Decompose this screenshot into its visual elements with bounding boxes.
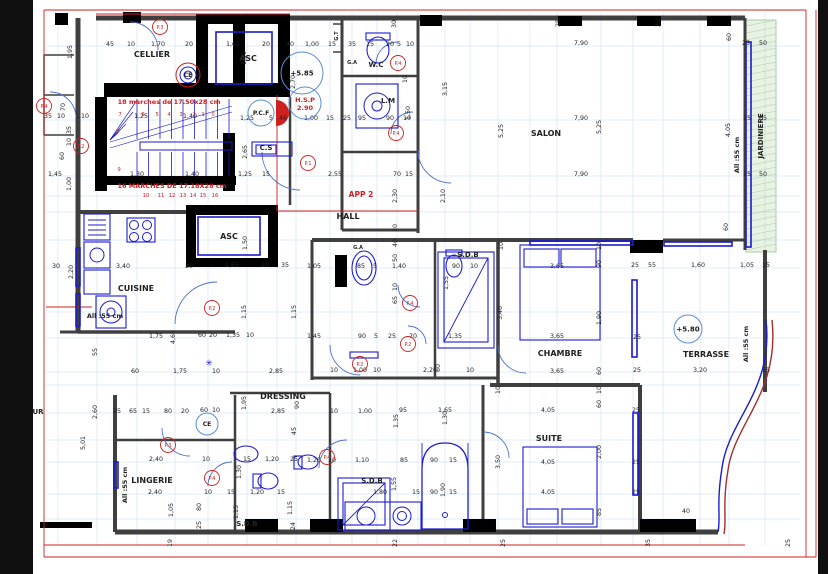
dimension: 1,90 [596,311,603,325]
dimension: 60 [723,223,730,231]
door-swing-arc [162,428,190,456]
fixture [350,352,378,358]
dimension: 3,40 [497,306,504,320]
dimension: 22 [392,539,399,547]
dimension: 25 [388,333,396,340]
stair-step-number: 9 [117,167,120,173]
dimension: 60 [131,368,139,375]
dimension: 90 [452,263,460,270]
dimension: 40 [682,508,690,515]
dimension: 2,60 [92,405,99,419]
fixture-circle [143,221,152,230]
dimension: 1,70 [151,41,165,48]
dimension: 1,00 [358,408,372,415]
allege-note: All :55 cm [121,467,129,504]
dimension: 10 [204,489,212,496]
dimension: 1,35 [226,332,240,339]
structural-column [55,13,68,25]
dimension: 1,40 [392,263,406,270]
structural-column [186,205,278,215]
stair-note: 16 MARCHES DE 17.18X28 cm [117,182,226,190]
door-tag: P.2 [77,144,84,150]
dimension: 15 [326,115,334,122]
dimension: 90 [596,260,603,268]
dimension: 15 [227,489,235,496]
dimension: 1,20 [265,456,279,463]
dimension: 1,75 [173,368,187,375]
dimension: 2,40 [148,489,162,496]
circled-label: P.C.F [253,110,269,117]
dimension: 10 [373,367,381,374]
dimension: 2,10 [440,189,447,203]
dimension: 15 [762,262,770,269]
fixture-line [444,258,488,342]
dimension: 10 [127,41,135,48]
dimension: 90 [358,333,366,340]
room-label: LINGERIE [131,476,172,485]
dimension: 1,65 [226,41,240,48]
dimension: 15 [142,408,150,415]
door-swing-arc [498,345,526,373]
dimension: 1,35 [448,333,462,340]
door-swing-arc [208,462,232,486]
dimension: 3,20 [693,367,707,374]
dimension: 5 [373,263,377,270]
dimension: 85 [596,508,603,516]
dimension: 2,55 [328,171,342,178]
structural-column [630,240,663,253]
dimension: 7,90 [574,115,588,122]
dimension: 25 [633,367,641,374]
dimension: 60 [198,332,206,339]
dimension: 15 [243,456,251,463]
dimension: 1,15 [241,305,248,319]
dimension: 1,45 [307,333,321,340]
dimension: 10 [57,113,65,120]
room-label: ASC [220,232,238,241]
room-label: G.A [353,245,363,251]
dimension: 60 [596,367,603,375]
room-label: DRESSING [260,392,306,401]
structural-column [268,205,278,267]
dimension: 1,00 [66,177,73,191]
dimension: 60 [435,364,442,372]
room-label: G.A [347,60,357,66]
dimension: 25 [632,407,640,414]
dimension: 90 [430,489,438,496]
dimension: 90 [386,115,394,122]
room-label: ASC [239,54,257,63]
hsp-label: H.S.P [295,96,315,104]
dimension: 15 [366,41,374,48]
dimension: 25 [633,334,641,341]
dimension: 10 [466,367,474,374]
dimension: 1,20 [250,489,264,496]
dimension: 2,40 [149,456,163,463]
dimension: 35 [281,262,289,269]
door-swing-arc [175,282,217,324]
circled-label: CE [184,72,193,79]
dimension: 3,15 [442,82,449,96]
room-label: L.M [381,97,395,105]
dimension: 35 [645,539,652,547]
dimension: 2,85 [269,368,283,375]
door-tag: P.4 [40,104,47,110]
dimension: 10 [498,242,505,250]
dimension: 3,50 [495,455,502,469]
stair-step-number: 12 [169,193,176,199]
room-label: HALL [336,212,359,221]
dimension: 20 [181,408,189,415]
dimension: 65 [759,115,767,122]
room-label: S.D.B [457,251,479,259]
door-tag: P.3 [164,443,171,449]
stair-note: APP 2 [349,190,374,199]
stair-step-number: 11 [158,193,165,199]
dimension: 3,65 [550,368,564,375]
fixture [562,509,593,524]
stair-rail [140,142,232,150]
floor-plan-drawing: JARDINIERE✳45101,70201,6520401,001535152… [0,0,828,574]
dimension: 4,65 [170,330,177,344]
allege-note: All :55 cm [733,137,741,174]
stair-step-number: 10 [143,193,150,199]
window [632,280,637,357]
room-label: CUISINE [118,284,154,293]
dimension: 50 [392,254,399,262]
dimension: 25 [785,539,792,547]
dimension: 15 [262,171,270,178]
dimension: 55 [648,262,656,269]
dimension: 1,25 [238,171,252,178]
dimension: 60 [596,400,603,408]
structural-column [335,255,347,287]
dimension: 1,10 [355,457,369,464]
dimension: 1,15 [291,305,298,319]
structural-column [186,205,196,267]
structural-column [40,522,92,528]
dimension: 25 [632,489,640,496]
dimension: 25 [196,521,203,529]
dimension: 5 [374,333,378,340]
dimension: 10 [596,242,603,250]
dimension: 1,75 [149,333,163,340]
fixture [561,249,596,267]
dimension: 1,05 [168,503,175,517]
window [633,413,638,495]
dimension: 25 [500,539,507,547]
dimension: 35 [44,113,52,120]
fixture [523,447,597,527]
allege-note: All :55 cm [87,312,124,320]
door-tag: P.4 [208,476,215,482]
stair-step-number: 13 [180,193,187,199]
allege-note: All :55 cm [742,326,750,363]
level-marker: +5.85 [290,70,313,78]
dimension: 1,55 [443,276,450,290]
structural-column [104,83,290,97]
dimension: 4,05 [541,489,555,496]
dimension: 24 [290,522,297,530]
dimension: 15 [405,171,413,178]
dimension: 30 [392,224,399,232]
dimension: 25 [743,115,751,122]
room-label: UR [32,408,44,416]
dimension: 25 [743,171,751,178]
dimension: 3,65 [550,263,564,270]
door-tag: P.2 [356,362,363,368]
dimension: 1,30 [130,171,144,178]
dimension: 55 [92,348,99,356]
dimension: 1,55 [391,477,398,491]
dimension: 1,65 [225,262,239,269]
dimension: 10 [406,41,414,48]
room-label: S.D.B [361,477,383,485]
dimension: 15 [762,367,770,374]
dimension: 19 [167,539,174,547]
dimension: 25 [343,115,351,122]
structural-column [707,16,731,26]
dimension: 1,90 [440,483,447,497]
room-label: SALON [531,129,561,138]
dimension: 45 [106,41,114,48]
dimension: 60 [726,33,733,41]
dimension: 20 [209,332,217,339]
dimension: 7,90 [574,171,588,178]
dimension: 80 [196,503,203,511]
dimension: 95 [358,115,366,122]
dimension: 60 [59,152,66,160]
stair-step-number: 4 [167,112,171,118]
window [664,242,732,246]
dimension: 20 [185,263,193,270]
structural-column [640,519,696,532]
dimension: 1,95 [67,45,74,59]
dimension: 45 [291,427,298,435]
dimension: 20 [261,262,269,269]
room-label: C.S [260,144,273,152]
stair-step-number: 15 [200,193,207,199]
dimension: 1,15 [287,501,294,515]
dimension: 5 [397,41,401,48]
dimension: 85 [400,457,408,464]
dimension: 1,95 [241,396,248,410]
dimension: 15 [412,489,420,496]
dimension: 3,65 [550,333,564,340]
dimension: 25 [632,459,640,466]
dimension: 10 [330,408,338,415]
dimension: 1,05 [740,262,754,269]
fixture-circle [393,507,411,525]
dimension: 1,80 [373,489,387,496]
stair-step-number: 5 [155,112,158,118]
stair-step-number: 1 [201,112,204,118]
dimension: 4,05 [541,459,555,466]
dimension: 10 [392,283,399,291]
dimension: 1,00 [305,41,319,48]
dimension: 25 [555,19,562,27]
dimension: 25 [742,40,750,47]
dimension: 10 [246,332,254,339]
dimension: 10 [470,263,478,270]
stair-note: 18 marches de 17.50x28 cm [118,98,221,106]
room-label: SUITE [536,434,562,443]
dimension: 80 [164,408,172,415]
dimension: 85 [357,263,365,270]
dimension: 70 [393,171,401,178]
dimension: 70 [60,103,67,111]
room-label: S.D.B [236,520,258,528]
stair-step-number: 16 [212,193,219,199]
door-tag: P.4 [323,455,330,461]
dimension: 1,30 [442,411,449,425]
dimension: 50 [759,40,767,47]
room-label: G.T [334,31,340,41]
room-label: CHAMBRE [538,349,582,358]
dimension: 10 [212,407,220,414]
fire-door-sector-icon [276,100,289,126]
dimension: 5,25 [596,120,603,134]
dimension: 1,15 [233,505,240,519]
dimension: 5,25 [498,124,505,138]
door-tag: P.2 [404,342,411,348]
door-tag: P.4 [406,301,413,307]
dimension: 10 [202,456,210,463]
dimension: 40 [286,41,294,48]
dimension: 3,40 [116,263,130,270]
door-tag: P.4 [392,131,399,137]
dimension: 46 [279,115,287,122]
dimension: 20 [655,19,662,27]
dimension: 10 [212,368,220,375]
room-label: TERRASSE [683,350,729,359]
dimension: 25 [113,408,121,415]
stair-step-number: 3 [179,112,182,118]
dimension: 90 [294,401,301,409]
dimension: 1,10 [75,113,89,120]
dimension: 20 [185,41,193,48]
dimension: 1,40 [185,171,199,178]
dimension: 50 [759,171,767,178]
dimension: 1,60 [691,262,705,269]
dimension: 10 [495,386,502,394]
dimension: 2,85 [271,408,285,415]
dimension: 10 [330,367,338,374]
dimension: 40 [392,239,399,247]
room-label: CELLIER [134,50,170,59]
dimension: 5,01 [80,436,87,450]
stair-step-number: 2 [192,112,195,118]
blueprint-screenshot: JARDINIERE✳45101,70201,6520401,001535152… [0,0,828,574]
dimension: 4,05 [541,407,555,414]
circled-label: CE [203,421,212,428]
dimension: 2,20 [68,265,75,279]
dimension: 30 [391,20,398,28]
dimension: 20 [386,41,394,48]
level-marker: +5.80 [676,326,699,334]
dimension: 15 [449,457,457,464]
fixture [527,509,558,524]
dimension: 2,65 [242,145,249,159]
structural-column [420,15,442,26]
dimension: 25 [631,262,639,269]
stair-step-number: 7 [118,112,121,118]
dimension: 95 [399,407,407,414]
dimension: 15 [449,489,457,496]
hsp-value: 2.90 [297,104,314,112]
dimension: 1,00 [353,367,367,374]
dimension: 35 [348,41,356,48]
fixture [345,502,421,530]
dimension: 25 [290,456,298,463]
dimension: 10 [402,75,409,83]
door-tag: P.2 [208,306,215,312]
fixture [520,245,600,340]
dimension: 10 [403,115,411,122]
dimension: 4,05 [725,123,732,137]
dimension: 35 [66,126,73,134]
door-tag: P.4 [394,61,401,67]
dimension: 2,30 [392,189,399,203]
dimension: 65 [129,408,137,415]
door-tag: P.1 [304,161,311,167]
dimension: 1,35 [393,414,400,428]
door-swing-arc [483,432,509,458]
dimension: 1,25 [307,457,321,464]
dimension: 1,30 [236,465,243,479]
dimension: 90 [430,457,438,464]
dimension: 10 [596,386,603,394]
dimension: 15 [277,489,285,496]
dimension: 2,00 [596,445,603,459]
stair-step-number: 14 [190,193,197,199]
dimension: 20 [262,41,270,48]
dimension: 1,50 [242,236,249,250]
room-label: W.C [369,61,384,69]
fixture-circle [357,507,375,525]
dimension: 15 [328,41,336,48]
dimension: 10 [66,138,73,146]
dimension: 7,90 [574,40,588,47]
door-swing-arc [418,150,451,183]
window [530,241,633,245]
door-tag: P.3 [156,25,163,31]
dimension: 30 [52,263,60,270]
dimension: 1,05 [307,263,321,270]
dimension: 65 [392,296,399,304]
dimension: 1,45 [48,171,62,178]
